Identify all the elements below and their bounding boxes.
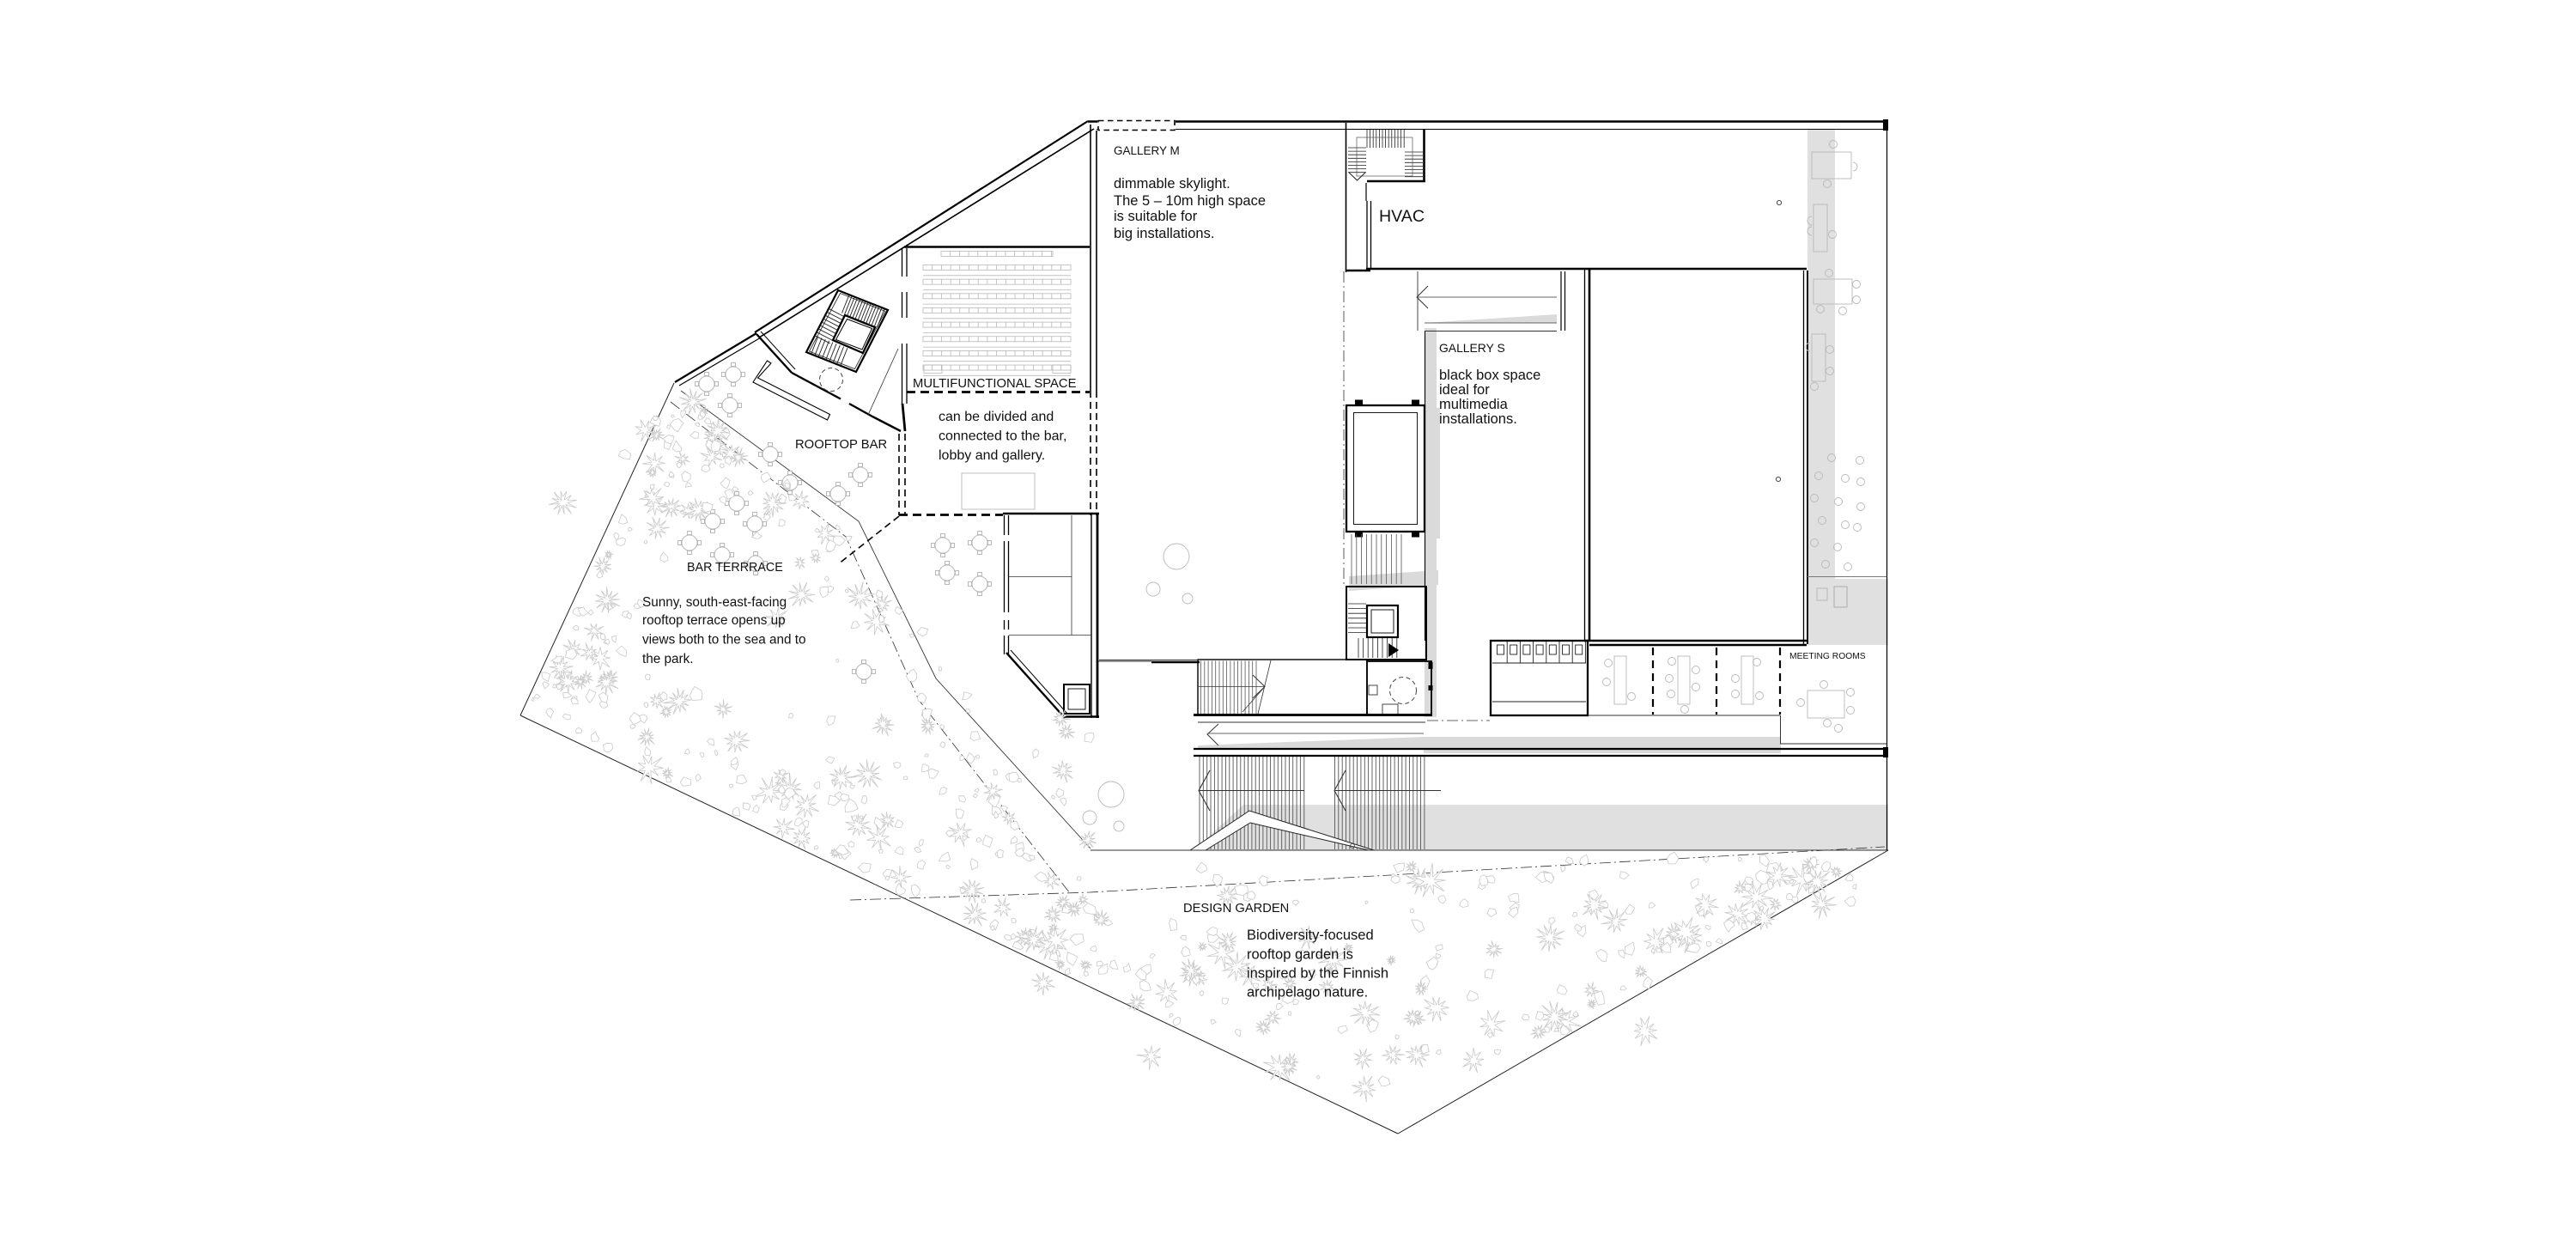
svg-text:installations.: installations. xyxy=(1439,411,1517,427)
svg-text:dimmable skylight.: dimmable skylight. xyxy=(1114,176,1230,192)
svg-text:inspired by the Finnish: inspired by the Finnish xyxy=(1247,966,1388,982)
svg-text:ROOFTOP BAR: ROOFTOP BAR xyxy=(795,438,887,452)
svg-text:multimedia: multimedia xyxy=(1439,397,1509,412)
svg-text:Sunny, south-east-facing: Sunny, south-east-facing xyxy=(642,595,787,610)
svg-text:archipelago nature.: archipelago nature. xyxy=(1247,985,1368,1001)
svg-text:BAR TERRRACE: BAR TERRRACE xyxy=(687,561,783,575)
svg-text:is suitable for: is suitable for xyxy=(1114,209,1198,224)
svg-text:Biodiversity-focused: Biodiversity-focused xyxy=(1247,928,1374,943)
svg-text:MULTIFUNCTIONAL SPACE: MULTIFUNCTIONAL SPACE xyxy=(913,377,1077,391)
svg-text:views both to the sea and to: views both to the sea and to xyxy=(642,633,806,648)
svg-text:GALLERY S: GALLERY S xyxy=(1439,341,1505,355)
svg-text:HVAC: HVAC xyxy=(1379,207,1425,226)
svg-text:DESIGN GARDEN: DESIGN GARDEN xyxy=(1183,902,1289,915)
svg-text:black box space: black box space xyxy=(1439,368,1540,383)
svg-text:ideal for: ideal for xyxy=(1439,382,1490,398)
svg-text:connected to the bar,: connected to the bar, xyxy=(939,429,1066,444)
svg-text:rooftop garden is: rooftop garden is xyxy=(1247,947,1353,963)
svg-text:rooftop terrace opens up: rooftop terrace opens up xyxy=(642,613,786,628)
svg-text:the park.: the park. xyxy=(642,652,694,666)
svg-text:GALLERY M: GALLERY M xyxy=(1114,144,1180,157)
svg-text:big installations.: big installations. xyxy=(1114,226,1214,241)
svg-text:The 5 – 10m high space: The 5 – 10m high space xyxy=(1114,193,1266,209)
svg-text:lobby and gallery.: lobby and gallery. xyxy=(939,448,1045,463)
svg-text:can be divided and: can be divided and xyxy=(939,410,1054,424)
svg-text:MEETING ROOMS: MEETING ROOMS xyxy=(1789,652,1866,661)
